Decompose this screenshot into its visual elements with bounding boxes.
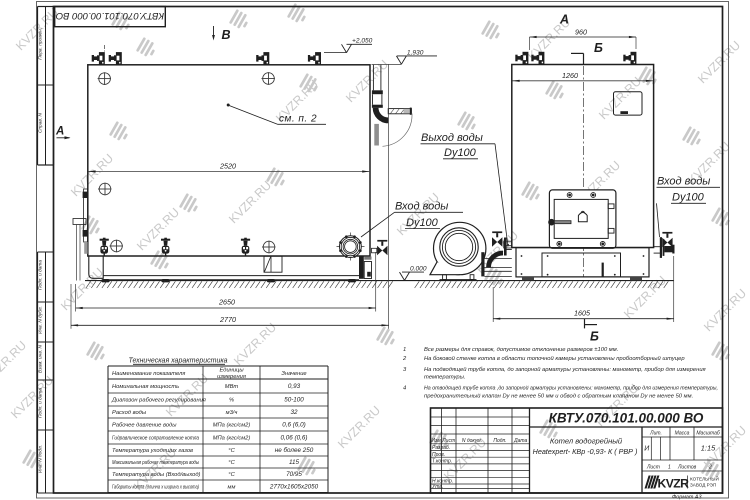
svg-text:70/95: 70/95	[286, 471, 302, 478]
svg-text:2650: 2650	[218, 298, 235, 307]
svg-text:На отводящей трубе котла ,до з: На отводящей трубе котла ,до запорной ар…	[424, 384, 718, 391]
svg-text:Утв.: Утв.	[432, 484, 443, 490]
svg-text:KVZR: KVZR	[658, 477, 690, 491]
svg-text:Лист: Лист	[646, 464, 660, 470]
svg-text:Максимальная рабочая температу: Максимальная рабочая температура воды	[112, 460, 200, 466]
svg-text:МПа (кгс/см2): МПа (кгс/см2)	[213, 423, 251, 429]
svg-text:2770х1605х2050: 2770х1605х2050	[269, 483, 319, 490]
svg-text:Heatexpert- КВр -0,93- К ( РВР: Heatexpert- КВр -0,93- К ( РВР )	[533, 447, 638, 456]
svg-text:Все размеры для справок, допус: Все размеры для справок, допустимое откл…	[424, 347, 618, 353]
svg-text:115: 115	[289, 459, 300, 466]
svg-text:мм: мм	[228, 484, 236, 490]
svg-text:Техническая характеристика: Техническая характеристика	[128, 358, 227, 365]
svg-text:Выход воды: Выход воды	[421, 132, 483, 144]
svg-text:А: А	[55, 126, 64, 138]
svg-text:%: %	[229, 398, 234, 404]
svg-text:МВт: МВт	[225, 384, 239, 390]
svg-text:температуры.: температуры.	[424, 375, 466, 381]
svg-text:Вход воды: Вход воды	[395, 201, 448, 213]
svg-text:Разраб.: Разраб.	[432, 445, 450, 451]
svg-text:1,930: 1,930	[407, 49, 424, 56]
svg-text:Листов: Листов	[677, 464, 697, 470]
svg-text:Вход воды: Вход воды	[657, 176, 710, 188]
svg-text:Котел водогрейный: Котел водогрейный	[550, 437, 623, 446]
svg-text:960: 960	[575, 28, 587, 37]
svg-text:Габариты котла (длинна х ширин: Габариты котла (длинна х ширина х высота…	[112, 484, 199, 490]
svg-text:1605: 1605	[574, 308, 591, 317]
svg-text:50-100: 50-100	[284, 397, 304, 404]
svg-text:Инв. N подл.: Инв. N подл.	[38, 445, 44, 473]
svg-text:32: 32	[290, 409, 298, 416]
svg-text:1: 1	[403, 347, 406, 353]
svg-text:Температура уходящих газов: Температура уходящих газов	[112, 448, 193, 454]
svg-text:Б: Б	[590, 330, 599, 344]
svg-text:+2,050: +2,050	[352, 38, 373, 45]
svg-text:Взам. инв. N: Взам. инв. N	[38, 345, 44, 373]
svg-text:Значение: Значение	[281, 371, 306, 377]
svg-text:Расход воды: Расход воды	[112, 410, 147, 416]
svg-text:Гидравлическое сопративление к: Гидравлическое сопративление котла	[112, 436, 199, 442]
svg-text:не более 250: не более 250	[275, 446, 314, 454]
svg-text:1260: 1260	[562, 71, 578, 80]
svg-text:КВТУ.070.101.00.000 ВО: КВТУ.070.101.00.000 ВО	[549, 410, 704, 425]
svg-text:2520: 2520	[219, 161, 236, 170]
svg-text:N докум.: N докум.	[462, 438, 482, 444]
svg-text:Масштаб: Масштаб	[696, 430, 720, 436]
svg-text:На боковой стенке котла в обла: На боковой стенке котла в области топочн…	[424, 355, 685, 362]
svg-text:Номинальная мощность: Номинальная мощность	[112, 384, 179, 390]
svg-text:Дата: Дата	[513, 438, 527, 444]
svg-text:2770: 2770	[219, 315, 236, 324]
svg-text:1:15: 1:15	[701, 444, 716, 453]
svg-text:Подп. и дата: Подп. и дата	[38, 260, 44, 290]
svg-text:°С: °С	[228, 448, 235, 454]
svg-text:Масса: Масса	[675, 430, 690, 436]
svg-text:Перв. примен.: Перв. примен.	[38, 28, 44, 60]
svg-text:А: А	[559, 13, 569, 27]
svg-text:КОТЕЛЬНЫЙ: КОТЕЛЬНЫЙ	[690, 475, 719, 482]
svg-text:На подводящей трубе котла, д: На подводящей трубе котла, до запорной а…	[424, 366, 706, 373]
svg-text:Инв. N дубл.: Инв. N дубл.	[38, 306, 44, 334]
svg-text:МПа (кгс/см2): МПа (кгс/см2)	[213, 436, 251, 442]
svg-text:Справ. N: Справ. N	[38, 112, 44, 133]
svg-text:В: В	[222, 28, 231, 42]
svg-text:Единицы: Единицы	[219, 368, 244, 374]
svg-text:Изм: Изм	[431, 438, 441, 444]
svg-text:измерения: измерения	[217, 374, 246, 380]
svg-text:Температура воды (Вход/выход): Температура воды (Вход/выход)	[112, 472, 201, 478]
svg-text:Т.контр.: Т.контр.	[432, 459, 452, 465]
svg-text:Диапазон рабочего регулировани: Диапазон рабочего регулирования	[111, 398, 206, 404]
svg-text:1: 1	[668, 464, 671, 470]
svg-text:Б: Б	[594, 41, 603, 55]
svg-text:4: 4	[403, 385, 406, 391]
svg-text:Пров.: Пров.	[432, 452, 445, 458]
svg-text:0,6 (6,0): 0,6 (6,0)	[282, 422, 305, 429]
svg-text:Формат А3: Формат А3	[672, 495, 702, 500]
svg-text:°С: °С	[228, 460, 235, 466]
svg-text:ЗАВОД РЭП: ЗАВОД РЭП	[690, 483, 716, 488]
svg-text:°С: °С	[228, 472, 235, 478]
svg-text:Dy100: Dy100	[406, 217, 439, 229]
svg-text:Лит.: Лит.	[649, 430, 662, 436]
svg-text:КВТУ.070.101.00.000 ВО: КВТУ.070.101.00.000 ВО	[55, 10, 164, 21]
svg-text:предохранительный клапан Dу н: предохранительный клапан Dу не менее 50 …	[424, 392, 693, 399]
svg-text:2: 2	[708, 464, 712, 470]
svg-text:Подп. и дата: Подп. и дата	[38, 388, 44, 418]
svg-text:Рабочее давление воды: Рабочее давление воды	[112, 423, 177, 429]
svg-text:Подп.: Подп.	[493, 438, 506, 444]
svg-text:0,06 (0,6): 0,06 (0,6)	[281, 435, 308, 442]
svg-text:0,93: 0,93	[288, 383, 301, 390]
svg-text:Dy100: Dy100	[672, 192, 705, 204]
svg-text:м3/ч: м3/ч	[226, 410, 238, 416]
svg-text:Лист: Лист	[441, 438, 455, 444]
svg-text:см. п. 2: см. п. 2	[279, 114, 317, 125]
svg-text:Dy100: Dy100	[444, 147, 477, 159]
svg-text:Наименование показателя: Наименование показателя	[112, 371, 185, 377]
svg-text:0.000: 0.000	[410, 266, 427, 273]
